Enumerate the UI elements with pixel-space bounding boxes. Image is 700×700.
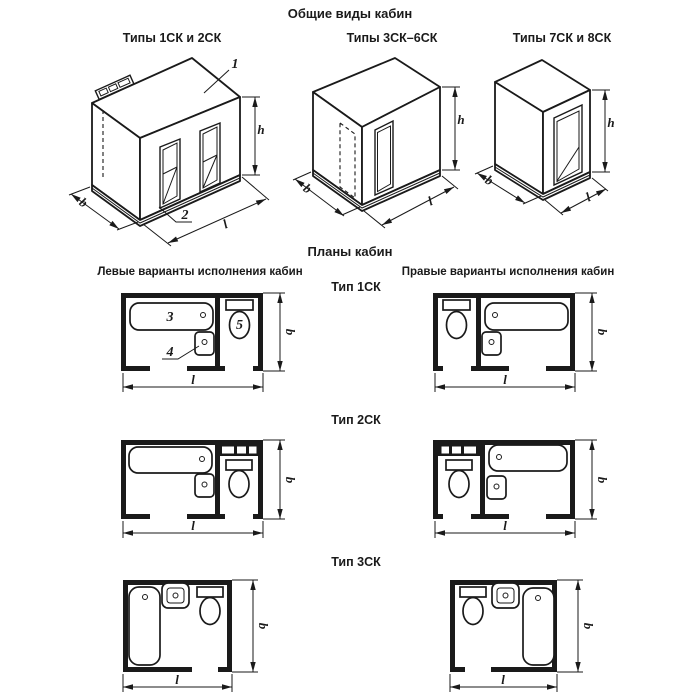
- svg-text:b: b: [595, 477, 610, 484]
- svg-text:b: b: [483, 172, 497, 188]
- svg-text:l: l: [220, 216, 230, 231]
- dimension-length: l: [123, 372, 263, 392]
- left-variants-header: Левые варианты исполнения кабин: [97, 266, 302, 278]
- dimension-width: b: [575, 440, 610, 519]
- svg-text:4: 4: [166, 345, 174, 360]
- svg-text:l: l: [191, 518, 195, 533]
- dimension-height: h: [242, 97, 265, 175]
- iso-view-types-1-2: 1 2 h b l: [55, 50, 285, 250]
- dimension-length: l: [435, 372, 575, 392]
- dimension-width: b: [557, 580, 596, 672]
- caption-types-1-2: Типы 1СК и 2СК: [123, 31, 221, 45]
- svg-text:b: b: [283, 329, 298, 336]
- svg-text:h: h: [257, 122, 264, 137]
- cabin-box: [495, 60, 590, 200]
- svg-text:b: b: [301, 180, 315, 196]
- svg-text:5: 5: [236, 318, 243, 333]
- dimension-length: l: [435, 518, 575, 538]
- vent-block-icon: [220, 444, 258, 456]
- iso-view-types-7-8: h b l: [470, 52, 640, 227]
- svg-text:l: l: [175, 672, 179, 687]
- dimension-width: b: [575, 293, 610, 371]
- washbasin-icon: [487, 476, 506, 499]
- cabin-box: [313, 58, 440, 211]
- plan-3sk-right: b l: [440, 575, 600, 697]
- dimension-length: l: [450, 672, 557, 692]
- plan-3sk-left: b l: [115, 575, 305, 697]
- right-variants-header: Правые варианты исполнения кабин: [402, 266, 615, 278]
- caption-types-3-6: Типы 3СК–6СК: [347, 31, 438, 45]
- svg-text:b: b: [77, 194, 91, 210]
- svg-text:h: h: [607, 115, 614, 130]
- svg-text:l: l: [503, 518, 507, 533]
- partition-wall: [215, 293, 220, 371]
- washbasin-icon: [195, 474, 214, 497]
- bathtub-icon: [129, 587, 160, 665]
- svg-text:l: l: [191, 372, 195, 387]
- dimension-width: b: [263, 440, 298, 519]
- drawing-sheet: Общие виды кабин Типы 1СК и 2СК Типы 3СК…: [0, 0, 700, 700]
- bathtub-icon: [485, 303, 568, 330]
- svg-text:b: b: [256, 623, 271, 630]
- washbasin-icon: [162, 583, 189, 608]
- svg-text:b: b: [283, 477, 298, 484]
- toilet-icon: [460, 587, 486, 625]
- vent-block-icon: [438, 444, 480, 456]
- svg-text:b: b: [595, 329, 610, 336]
- bathtub-icon: 3: [130, 303, 213, 330]
- toilet-icon: [226, 460, 252, 498]
- partition-wall: [215, 440, 220, 519]
- svg-text:l: l: [503, 372, 507, 387]
- dimension-length: l: [123, 518, 263, 538]
- iso-view-types-3-6: h b l: [285, 50, 480, 240]
- partition-wall: [480, 440, 485, 519]
- svg-text:2: 2: [181, 208, 189, 223]
- dimension-width: b: [263, 293, 298, 371]
- svg-text:b: b: [581, 623, 596, 630]
- svg-text:3: 3: [166, 310, 174, 325]
- dimension-length: l: [123, 672, 232, 692]
- toilet-icon: [446, 460, 472, 498]
- bathtub-icon: [489, 445, 567, 471]
- bathtub-icon: [129, 447, 212, 473]
- dimension-height: h: [442, 87, 465, 170]
- plan-2sk-left: b l: [115, 435, 300, 543]
- dimension-width: b: [232, 580, 271, 672]
- toilet-icon: 5: [226, 300, 253, 339]
- page-title: Общие виды кабин: [288, 6, 413, 21]
- type-3sk-label: Тип 3СК: [331, 555, 380, 569]
- dimension-height: h: [592, 90, 615, 172]
- cabin-box: [92, 58, 240, 226]
- svg-text:l: l: [501, 672, 505, 687]
- plans-title: Планы кабин: [307, 244, 392, 259]
- type-2sk-label: Тип 2СК: [331, 413, 380, 427]
- svg-text:h: h: [457, 112, 464, 127]
- caption-types-7-8: Типы 7СК и 8СК: [513, 31, 611, 45]
- bathtub-icon: [523, 588, 554, 665]
- toilet-icon: [443, 300, 470, 339]
- plan-1sk-right: b l: [428, 288, 613, 400]
- svg-text:1: 1: [232, 57, 239, 72]
- type-1sk-label: Тип 1СК: [331, 280, 380, 294]
- plan-2sk-right: b l: [428, 435, 613, 543]
- washbasin-icon: 4: [162, 332, 214, 360]
- plan-1sk-left: 3 4 5 b l: [115, 288, 300, 400]
- partition-wall: [476, 293, 481, 371]
- washbasin-icon: [492, 583, 519, 608]
- washbasin-icon: [482, 332, 501, 355]
- toilet-icon: [197, 587, 223, 625]
